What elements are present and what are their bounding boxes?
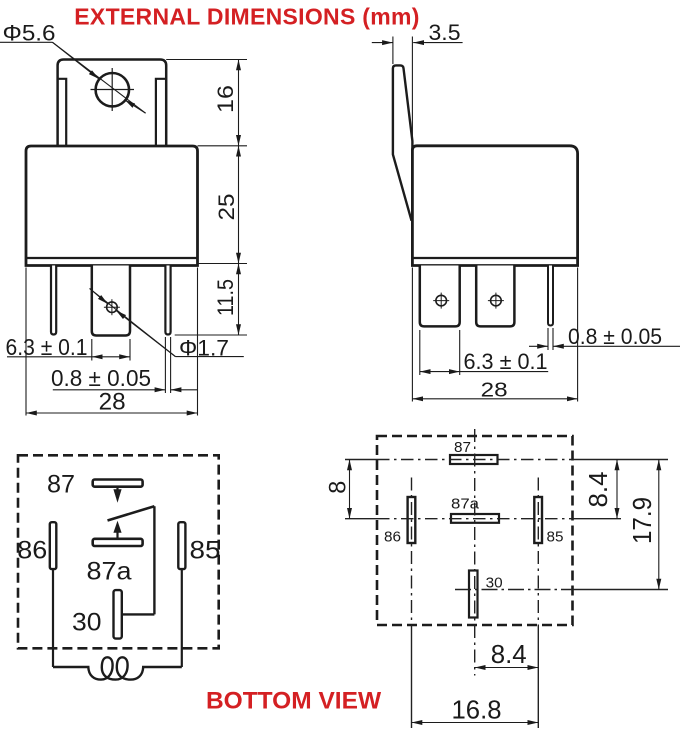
svg-text:30: 30 [72,608,102,636]
svg-text:28: 28 [481,379,508,402]
svg-text:17.9: 17.9 [627,497,657,544]
svg-text:86: 86 [384,530,401,546]
svg-text:87a: 87a [451,497,480,513]
svg-text:85: 85 [547,530,564,546]
svg-text:30: 30 [486,576,503,592]
svg-text:Φ5.6: Φ5.6 [3,21,56,46]
svg-text:85: 85 [190,537,221,565]
svg-text:25: 25 [214,194,239,221]
svg-text:3.5: 3.5 [429,20,461,45]
svg-text:Φ1.7: Φ1.7 [179,336,229,361]
svg-text:8.4: 8.4 [491,639,527,669]
svg-text:8.4: 8.4 [583,472,613,508]
svg-text:BOTTOM VIEW: BOTTOM VIEW [206,688,382,715]
svg-text:8: 8 [325,481,352,494]
svg-text:87: 87 [47,471,75,499]
svg-text:0.8 ± 0.05: 0.8 ± 0.05 [568,324,662,349]
svg-text:86: 86 [17,537,47,565]
svg-text:11.5: 11.5 [213,279,238,316]
svg-text:87: 87 [454,440,471,456]
svg-text:0.8 ± 0.05: 0.8 ± 0.05 [51,365,151,391]
svg-text:6.3 ± 0.1: 6.3 ± 0.1 [464,349,548,374]
svg-text:16.8: 16.8 [452,695,502,725]
svg-text:87a: 87a [87,558,132,586]
svg-text:28: 28 [99,389,126,416]
svg-text:EXTERNAL DIMENSIONS (mm): EXTERNAL DIMENSIONS (mm) [74,4,419,30]
svg-text:6.3 ± 0.1: 6.3 ± 0.1 [6,334,88,360]
svg-text:16: 16 [213,85,238,113]
